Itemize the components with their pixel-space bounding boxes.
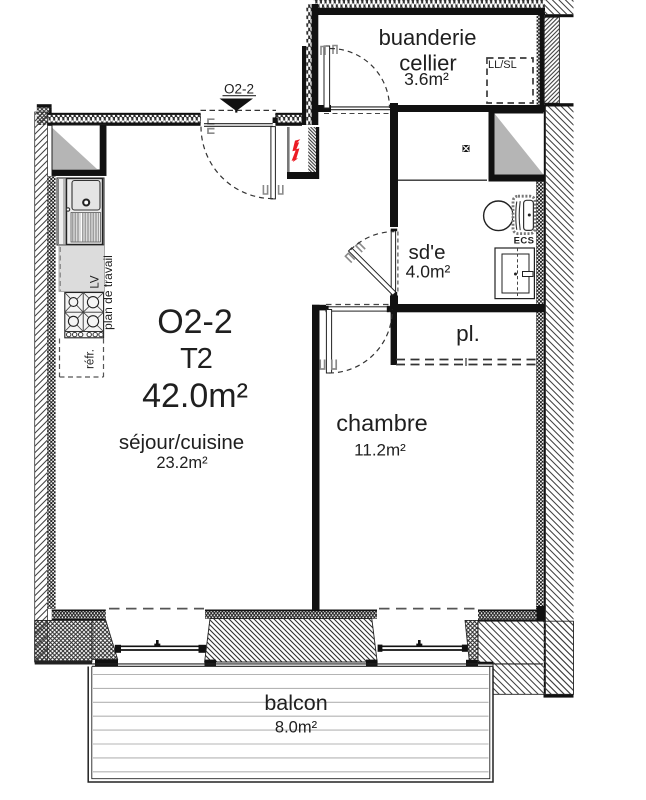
svg-text:T2: T2: [180, 343, 212, 375]
svg-text:chambre: chambre: [336, 410, 427, 436]
svg-text:LL/SL: LL/SL: [488, 59, 517, 71]
svg-text:plan de travail: plan de travail: [101, 255, 115, 330]
svg-text:42.0m²: 42.0m²: [142, 377, 248, 415]
svg-text:O2-2: O2-2: [224, 82, 254, 97]
svg-text:LV: LV: [90, 275, 102, 289]
svg-text:buanderie: buanderie: [379, 25, 477, 50]
svg-text:séjour/cuisine: séjour/cuisine: [119, 431, 244, 454]
svg-text:réfr.: réfr.: [85, 349, 97, 369]
svg-text:ECS: ECS: [514, 235, 535, 246]
svg-text:balcon: balcon: [264, 691, 327, 715]
svg-text:pl.: pl.: [456, 321, 480, 346]
svg-text:11.2m²: 11.2m²: [354, 441, 406, 460]
svg-text:23.2m²: 23.2m²: [156, 454, 208, 472]
svg-text:4.0m²: 4.0m²: [406, 262, 451, 282]
svg-text:3.6m²: 3.6m²: [404, 69, 449, 89]
svg-text:8.0m²: 8.0m²: [275, 719, 318, 737]
svg-text:O2-2: O2-2: [157, 303, 233, 341]
